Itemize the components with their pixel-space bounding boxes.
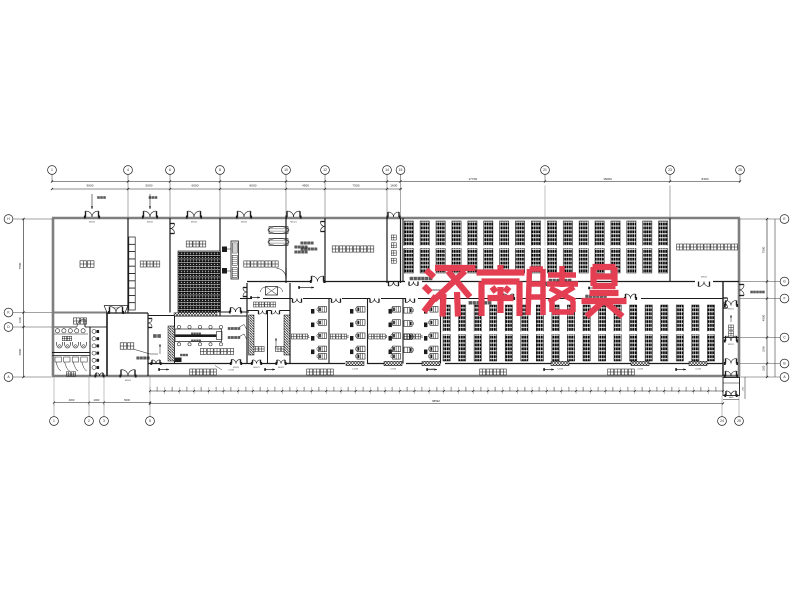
svg-text:14: 14 xyxy=(385,168,389,172)
svg-text:C2118: C2118 xyxy=(228,370,235,372)
svg-text:M1521: M1521 xyxy=(89,222,96,224)
svg-text:1800: 1800 xyxy=(260,386,262,392)
svg-text:2500: 2500 xyxy=(275,386,277,392)
svg-text:8000: 8000 xyxy=(250,184,257,188)
svg-text:2500: 2500 xyxy=(333,386,335,392)
svg-text:2500: 2500 xyxy=(363,386,365,392)
svg-text:M0921: M0921 xyxy=(253,367,260,369)
svg-text:1800: 1800 xyxy=(436,386,438,392)
svg-text:G: G xyxy=(783,280,786,284)
svg-text:1800: 1800 xyxy=(378,386,380,392)
svg-text:24: 24 xyxy=(720,419,724,423)
svg-text:2500: 2500 xyxy=(187,386,189,392)
svg-text:6800: 6800 xyxy=(18,348,22,355)
svg-text:9600: 9600 xyxy=(87,184,94,188)
svg-text:4500: 4500 xyxy=(302,184,309,188)
svg-text:1800: 1800 xyxy=(554,386,556,392)
svg-text:M1521: M1521 xyxy=(191,222,198,224)
svg-text:1: 1 xyxy=(53,419,55,423)
svg-text:12: 12 xyxy=(323,168,327,172)
svg-text:M1521: M1521 xyxy=(728,344,734,346)
svg-text:M1521: M1521 xyxy=(241,222,248,224)
svg-text:15: 15 xyxy=(399,168,403,172)
svg-text:2200: 2200 xyxy=(762,346,766,352)
svg-text:2500: 2500 xyxy=(569,386,571,392)
svg-text:M1821: M1821 xyxy=(113,308,120,310)
svg-text:M1521: M1521 xyxy=(728,309,734,311)
svg-text:10: 10 xyxy=(284,168,288,172)
svg-text:1800: 1800 xyxy=(613,386,615,392)
svg-text:M0921: M0921 xyxy=(278,367,285,369)
svg-text:1: 1 xyxy=(307,334,310,339)
svg-text:1800: 1800 xyxy=(701,386,703,392)
svg-text:1800: 1800 xyxy=(642,386,644,392)
svg-text:C2118: C2118 xyxy=(352,368,359,370)
svg-text:C2118: C2118 xyxy=(695,368,702,370)
svg-text:C2118: C2118 xyxy=(390,368,397,370)
svg-text:6: 6 xyxy=(169,168,171,172)
svg-text:1800: 1800 xyxy=(495,386,497,392)
svg-text:C2118: C2118 xyxy=(557,368,564,370)
svg-text:1800: 1800 xyxy=(231,386,233,392)
svg-text:F: F xyxy=(783,297,785,301)
svg-text:1500: 1500 xyxy=(763,365,766,371)
svg-text:2500: 2500 xyxy=(510,386,512,392)
svg-text:2500: 2500 xyxy=(245,386,247,392)
svg-text:1800: 1800 xyxy=(524,386,526,392)
svg-text:2500: 2500 xyxy=(539,386,541,392)
svg-text:2500: 2500 xyxy=(216,386,218,392)
svg-text:M1521: M1521 xyxy=(701,277,708,279)
svg-text:4500: 4500 xyxy=(762,314,766,321)
svg-text:2500: 2500 xyxy=(715,386,717,392)
svg-text:2500: 2500 xyxy=(627,386,629,392)
svg-text:8: 8 xyxy=(219,168,221,172)
svg-text:2500: 2500 xyxy=(157,386,159,392)
svg-text:25: 25 xyxy=(738,168,742,172)
svg-text:M1521: M1521 xyxy=(290,222,297,224)
svg-text:2500: 2500 xyxy=(422,386,424,392)
svg-text:2500: 2500 xyxy=(598,386,600,392)
svg-text:2: 2 xyxy=(346,334,349,339)
svg-text:3: 3 xyxy=(385,334,388,339)
svg-text:21: 21 xyxy=(543,168,547,172)
svg-text:M1521: M1521 xyxy=(233,367,240,369)
svg-text:17700: 17700 xyxy=(468,177,477,181)
svg-text:8300: 8300 xyxy=(702,177,709,181)
svg-text:7500: 7500 xyxy=(762,246,766,253)
svg-text:2000: 2000 xyxy=(94,398,100,402)
svg-text:M1521: M1521 xyxy=(147,222,154,224)
svg-text:1800: 1800 xyxy=(348,386,350,392)
svg-text:7500: 7500 xyxy=(353,184,360,188)
svg-text:23: 23 xyxy=(668,168,672,172)
svg-text:4: 4 xyxy=(420,334,423,339)
svg-text:2500: 2500 xyxy=(304,386,306,392)
svg-text:1800: 1800 xyxy=(319,386,321,392)
svg-text:1600: 1600 xyxy=(390,184,397,188)
svg-text:3: 3 xyxy=(103,419,105,423)
svg-text:1800: 1800 xyxy=(407,386,409,392)
svg-text:1: 1 xyxy=(51,168,53,172)
svg-text:7500: 7500 xyxy=(18,262,22,269)
svg-text:6000: 6000 xyxy=(192,184,199,188)
svg-text:2500: 2500 xyxy=(480,386,482,392)
svg-text:5000: 5000 xyxy=(146,184,153,188)
svg-text:1800: 1800 xyxy=(289,386,291,392)
svg-text:M1521: M1521 xyxy=(232,316,239,318)
svg-text:1800: 1800 xyxy=(583,386,585,392)
svg-text:2500: 2500 xyxy=(451,386,453,392)
svg-text:2500: 2500 xyxy=(657,386,659,392)
svg-text:2500: 2500 xyxy=(686,386,688,392)
svg-text:M1521: M1521 xyxy=(125,380,132,382)
svg-text:1800: 1800 xyxy=(466,386,468,392)
svg-text:1800: 1800 xyxy=(172,386,174,392)
svg-text:5: 5 xyxy=(149,419,151,423)
svg-text:1800: 1800 xyxy=(671,386,673,392)
svg-text:1800: 1800 xyxy=(201,386,203,392)
svg-text:68592: 68592 xyxy=(432,399,440,403)
svg-text:4: 4 xyxy=(127,168,129,172)
svg-text:4300: 4300 xyxy=(69,398,75,402)
svg-text:2: 2 xyxy=(88,419,90,423)
svg-text:C2118: C2118 xyxy=(428,368,435,370)
svg-text:C2118: C2118 xyxy=(637,368,644,370)
svg-text:25: 25 xyxy=(737,419,741,423)
svg-text:5600: 5600 xyxy=(124,398,130,402)
svg-text:1000: 1000 xyxy=(18,317,22,323)
svg-text:15000: 15000 xyxy=(603,177,612,181)
svg-text:2500: 2500 xyxy=(392,386,394,392)
